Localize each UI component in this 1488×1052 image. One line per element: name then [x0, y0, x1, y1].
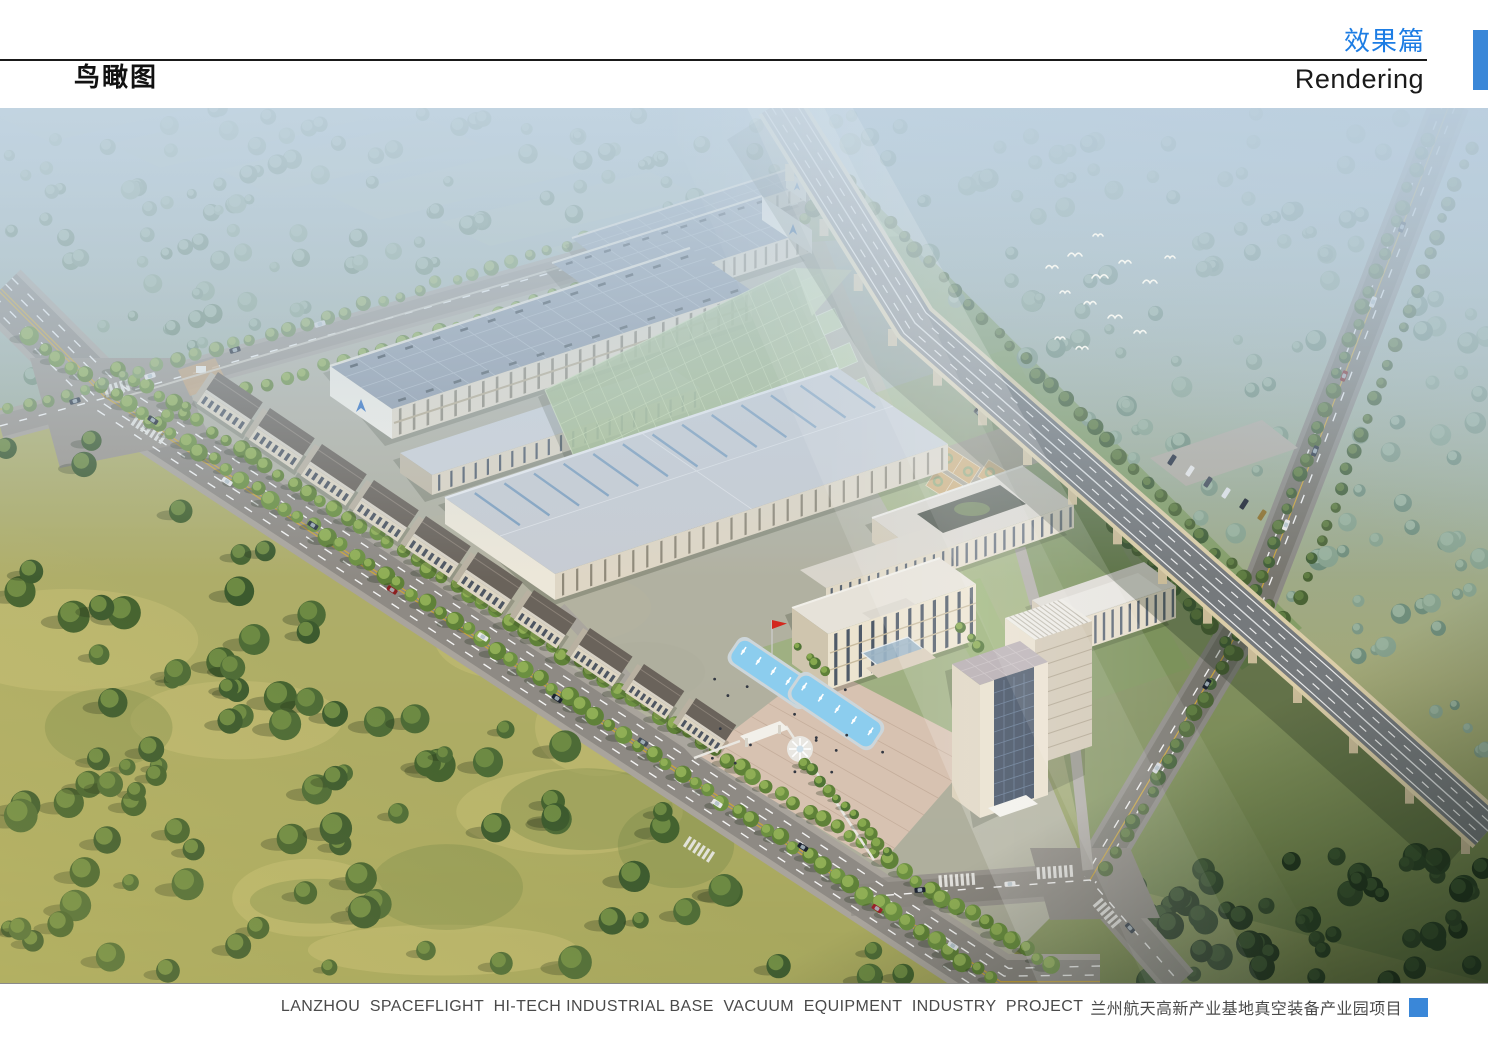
page-title: 鸟瞰图	[74, 62, 158, 93]
blue-tab-accent	[1473, 30, 1488, 90]
presentation-page: 效果篇 Rendering 鸟瞰图 LANZHOU SPACEFLIGHT HI…	[0, 0, 1488, 1052]
project-name-en: LANZHOU SPACEFLIGHT HI-TECH INDUSTRIAL B…	[281, 998, 1084, 1016]
aerial-rendering-image	[0, 108, 1488, 984]
project-name-zh: 兰州航天高新产业基地真空装备产业园项目	[1090, 995, 1402, 1019]
section-title-zh: 效果篇	[1344, 26, 1425, 57]
project-caption: LANZHOU SPACEFLIGHT HI-TECH INDUSTRIAL B…	[0, 995, 1428, 1019]
header-rule	[0, 59, 1427, 61]
caption-accent-square-icon	[1409, 998, 1428, 1017]
section-title-en: Rendering	[1295, 63, 1424, 95]
atmosphere	[0, 108, 1488, 983]
